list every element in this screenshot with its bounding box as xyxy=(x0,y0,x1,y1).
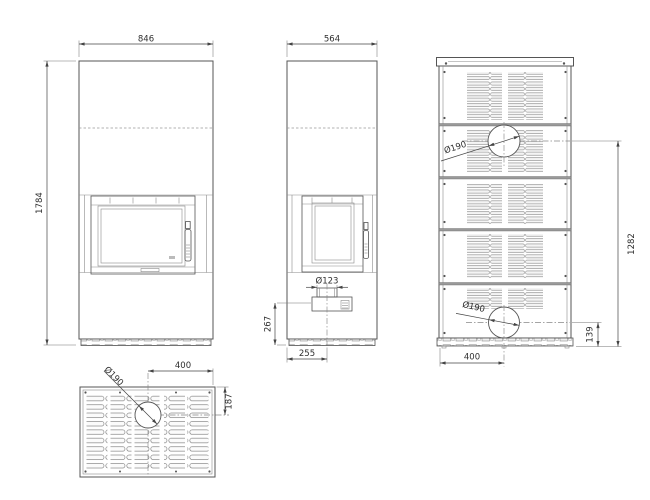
back-body xyxy=(439,66,571,338)
front-logo-mark xyxy=(169,256,175,259)
technical-drawing-sheet: 846 1784 xyxy=(0,0,650,500)
front-view: 846 1784 xyxy=(35,35,213,346)
front-height-dimension: 1784 xyxy=(35,61,76,345)
flue-offset-dimension: 255 xyxy=(287,348,327,363)
front-width-dimension: 846 xyxy=(79,35,213,58)
flue-height-label: 267 xyxy=(264,316,274,332)
lower-outlet-height-label: 139 xyxy=(586,326,596,342)
back-outlet-offset-label: 400 xyxy=(464,353,480,363)
back-divider-2 xyxy=(439,177,571,180)
side-width-label: 564 xyxy=(324,35,340,45)
top-outlet-offset-x-dimension: 400 xyxy=(148,361,213,385)
lower-outlet-height-dimension: 139 xyxy=(572,323,622,347)
top-outlet-offset-x-label: 400 xyxy=(175,361,191,371)
top-outlet-diameter-label: Ø190 xyxy=(102,364,126,388)
back-divider-4 xyxy=(439,283,571,286)
back-view: Ø190 Ø190 400 139 xyxy=(437,58,638,367)
upper-outlet-height-label: 1282 xyxy=(627,233,637,255)
upper-outlet-height-dimension: 1282 xyxy=(572,141,637,347)
front-height-label: 1784 xyxy=(35,192,45,214)
side-view: 564 Ø123 267 255 xyxy=(264,35,378,363)
back-plinth xyxy=(437,338,573,346)
top-view: Ø190 400 187 xyxy=(80,361,235,477)
back-divider-3 xyxy=(439,229,571,232)
top-outlet-offset-y-label: 187 xyxy=(225,393,235,409)
front-body xyxy=(79,61,213,339)
front-plinth xyxy=(81,339,211,346)
top-outlet-offset-y-dimension: 187 xyxy=(217,387,235,415)
flue-diameter-label: Ø123 xyxy=(316,276,339,287)
drawing-svg: 846 1784 xyxy=(0,0,650,500)
side-width-dimension: 564 xyxy=(287,35,377,58)
side-plinth xyxy=(289,339,375,346)
front-width-label: 846 xyxy=(138,35,154,45)
back-outlet-offset-dimension: 400 xyxy=(440,343,504,367)
flue-offset-label: 255 xyxy=(299,349,315,359)
